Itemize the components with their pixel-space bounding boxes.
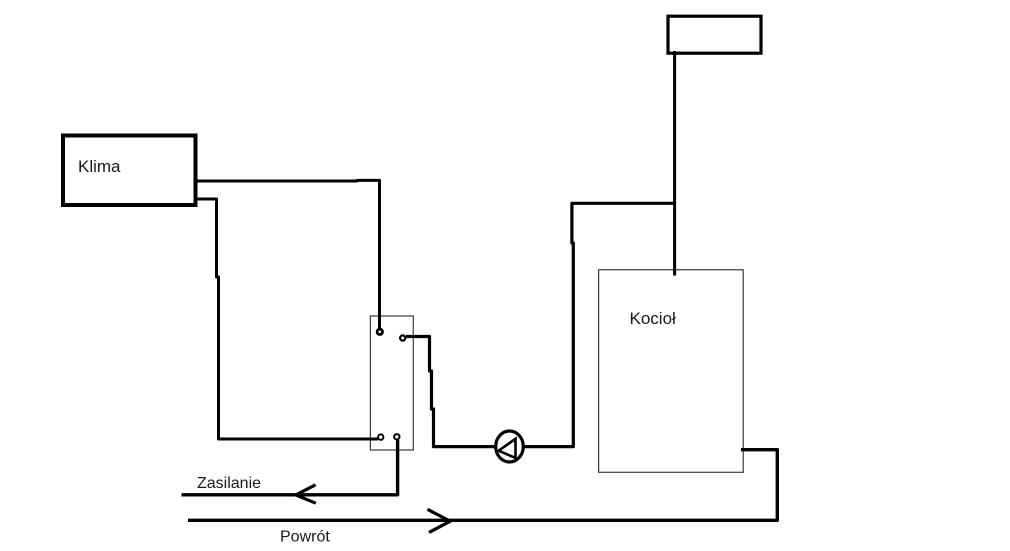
svg-text:Kocioł: Kocioł bbox=[630, 309, 677, 328]
svg-text:Powrót: Powrót bbox=[280, 529, 330, 546]
svg-text:Zasilanie: Zasilanie bbox=[197, 475, 261, 492]
svg-text:Klima: Klima bbox=[78, 157, 121, 176]
